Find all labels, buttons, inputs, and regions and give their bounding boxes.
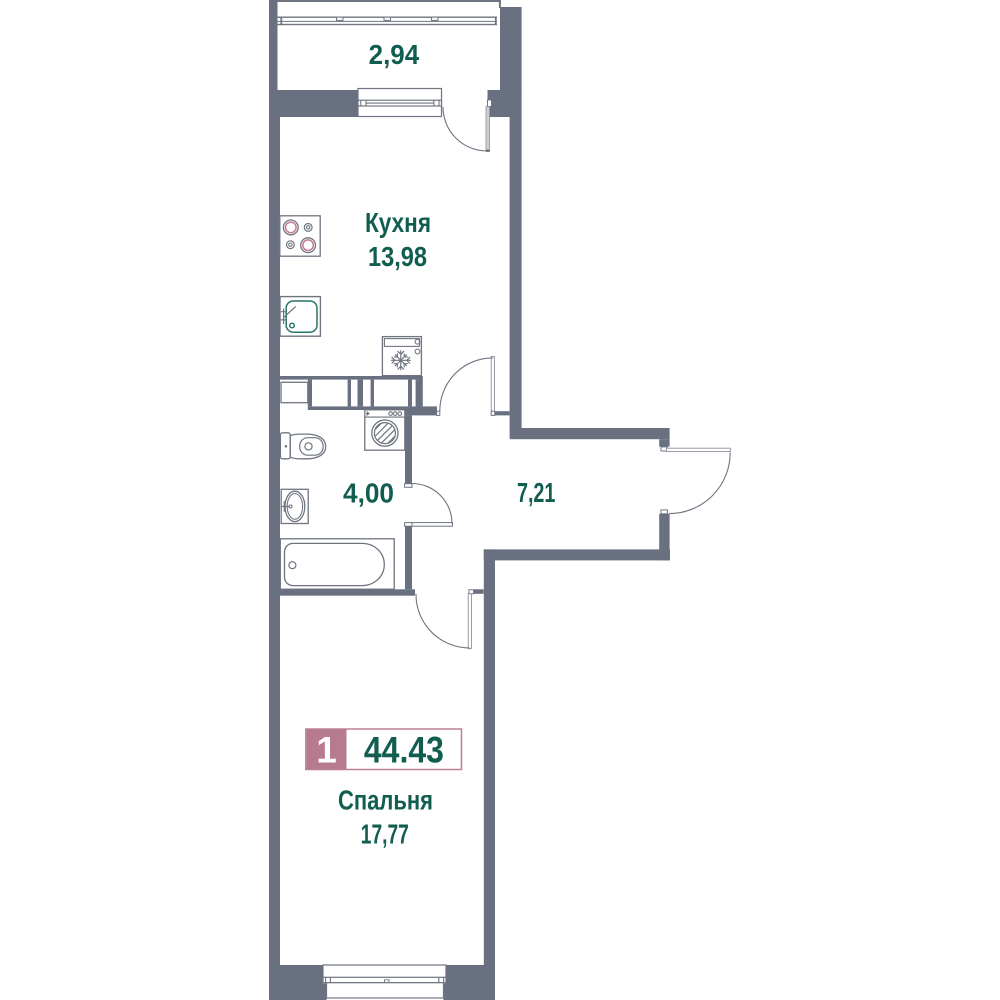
svg-text:2,94: 2,94 <box>369 39 420 70</box>
svg-text:Спальня: Спальня <box>338 784 433 815</box>
svg-text:17,77: 17,77 <box>361 818 409 849</box>
svg-text:13,98: 13,98 <box>368 241 427 272</box>
svg-text:44.43: 44.43 <box>364 730 444 771</box>
svg-text:1: 1 <box>316 730 337 771</box>
svg-text:Кухня: Кухня <box>365 207 431 238</box>
svg-text:4,00: 4,00 <box>343 477 394 508</box>
svg-text:7,21: 7,21 <box>517 477 556 508</box>
